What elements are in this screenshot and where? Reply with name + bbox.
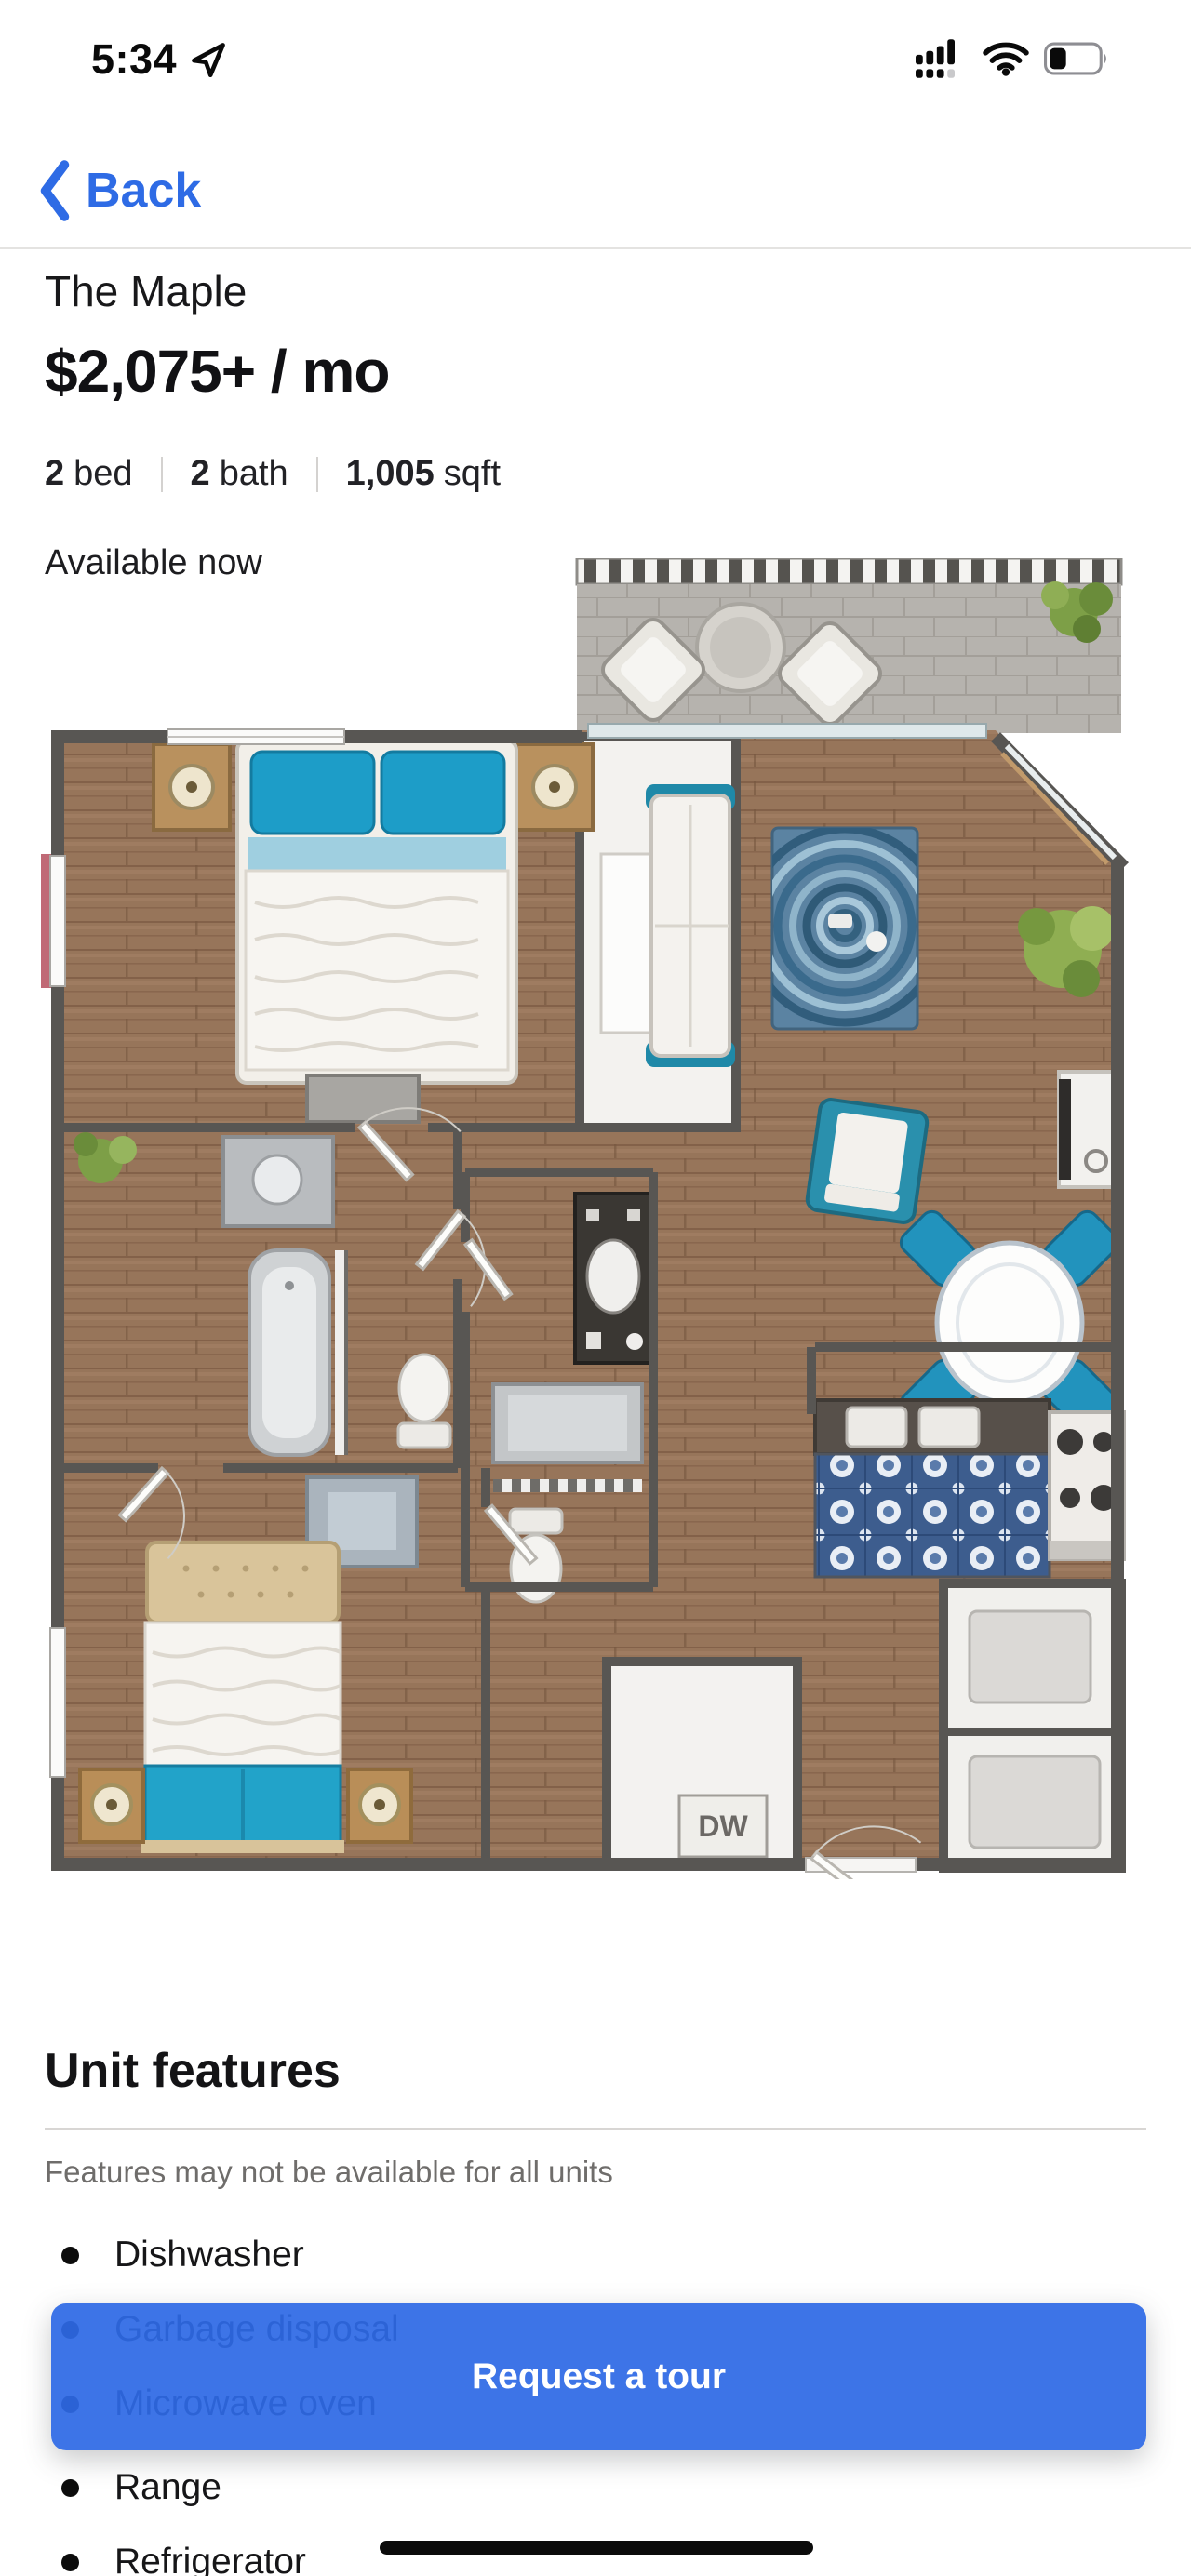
status-right-cluster xyxy=(916,39,1109,78)
status-left-cluster: 5:34 xyxy=(91,35,227,84)
sofa xyxy=(646,784,735,1067)
tv-console xyxy=(1059,1072,1118,1187)
home-indicator[interactable] xyxy=(380,2541,813,2555)
shower-screen xyxy=(493,1479,642,1492)
status-bar: 5:34 xyxy=(0,20,1191,99)
spec-beds: 2bed xyxy=(45,454,133,494)
unit-features-title: Unit features xyxy=(45,2043,341,2099)
chevron-left-icon xyxy=(37,160,73,221)
list-item: Dishwasher xyxy=(61,2235,304,2276)
features-divider xyxy=(45,2128,1146,2130)
request-tour-label: Request a tour xyxy=(472,2356,726,2397)
list-item: Refrigerator xyxy=(61,2542,306,2576)
bed-2 xyxy=(141,1542,344,1853)
bullet-icon xyxy=(61,2554,79,2571)
spec-sqft: 1,005sqft xyxy=(346,454,501,494)
balcony xyxy=(577,558,1121,733)
sink xyxy=(847,1408,906,1447)
listing-price: $2,075+ / mo xyxy=(45,337,389,406)
iphone-screen: 5:34 xyxy=(0,0,1191,2576)
storage-rooms xyxy=(943,1583,1121,1868)
armchair xyxy=(806,1099,929,1224)
bed-1 xyxy=(237,741,516,1083)
sink xyxy=(919,1408,979,1447)
clock: 5:34 xyxy=(91,35,177,84)
battery-low-icon xyxy=(1044,42,1109,75)
spec-divider xyxy=(161,457,163,492)
spec-baths: 2bath xyxy=(191,454,288,494)
back-button[interactable]: Back xyxy=(37,149,201,233)
spec-divider xyxy=(316,457,318,492)
dresser xyxy=(307,1075,419,1122)
listing-specs: 2bed 2bath 1,005sqft xyxy=(45,454,501,494)
shower-screen xyxy=(335,1250,348,1455)
spiral-rug xyxy=(748,828,942,1029)
request-tour-button[interactable]: Request a tour xyxy=(51,2303,1146,2450)
back-label: Back xyxy=(86,163,201,219)
floor-plan-image[interactable]: DW xyxy=(28,558,1149,1879)
wifi-icon xyxy=(983,41,1029,76)
vanity-dark xyxy=(575,1194,651,1363)
nav-divider xyxy=(0,247,1191,249)
bullet-icon xyxy=(61,2247,79,2264)
features-note: Features may not be available for all un… xyxy=(45,2155,613,2190)
dishwasher: DW xyxy=(679,1795,767,1857)
cellular-signal-dual-sim-icon xyxy=(916,39,968,78)
sliding-door xyxy=(588,724,986,738)
listing-name: The Maple xyxy=(45,266,247,316)
dw-label: DW xyxy=(698,1809,748,1843)
toilet xyxy=(398,1355,450,1448)
list-item: Range xyxy=(61,2467,221,2508)
bullet-icon xyxy=(61,2479,79,2497)
kitchen-tile-floor xyxy=(815,1454,1050,1577)
location-arrow-icon xyxy=(190,41,227,78)
